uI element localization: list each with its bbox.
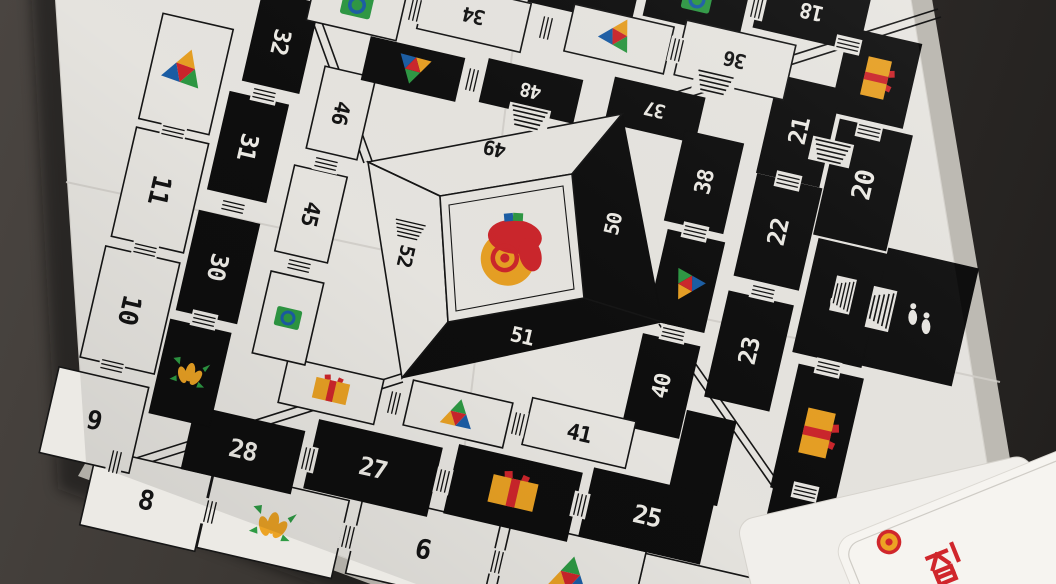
cell-number: 18 bbox=[798, 0, 826, 26]
board-photo: 1368910111820212223252728303132343637384… bbox=[0, 0, 1056, 584]
goal-cell bbox=[440, 174, 584, 322]
photo-scene: 1368910111820212223252728303132343637384… bbox=[0, 0, 1056, 584]
